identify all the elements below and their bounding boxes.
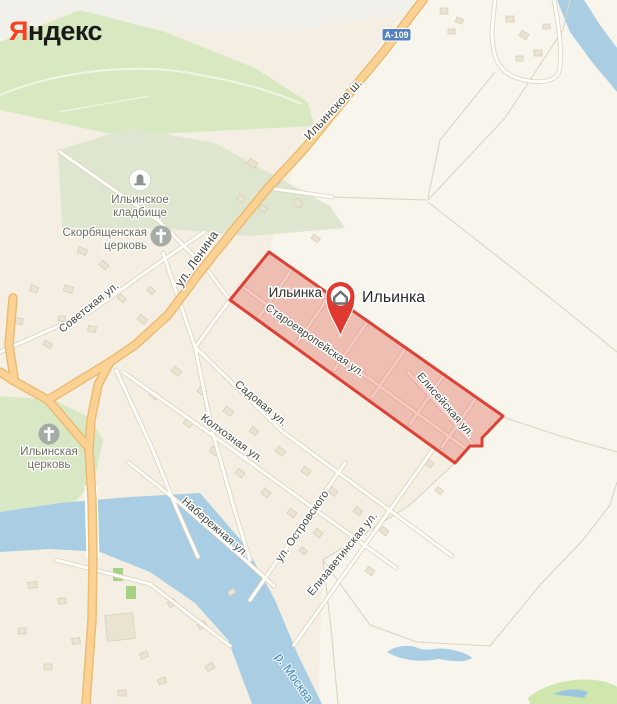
yandex-logo-rest: ндекс <box>28 16 103 46</box>
poi-ilyinskaya-label-line2: церковь <box>28 459 71 471</box>
poi-cemetery-label-line2: кладбище <box>113 207 167 219</box>
yandex-logo-ya: Я <box>9 16 28 46</box>
highway-badge-label: А-109 <box>385 30 409 40</box>
green-patch <box>126 586 136 599</box>
settlement-label: Ильинка <box>269 285 323 300</box>
poi-cemetery-label-line1: Ильинское <box>111 194 168 206</box>
poi-skorb-label-line1: Скорбященская <box>62 227 147 239</box>
poi-ilyinskaya-label-line1: Ильинская <box>20 446 77 458</box>
highway-badge: А-109 <box>382 29 411 42</box>
placemark-label[interactable]: Ильинка <box>362 289 425 306</box>
poi-skorb-label-line2: церковь <box>104 240 147 252</box>
map-canvas[interactable]: Ильинское ш. ул. Ленина Советская ул. Ст… <box>0 0 617 704</box>
yandex-logo[interactable]: Яндекс <box>9 16 103 46</box>
